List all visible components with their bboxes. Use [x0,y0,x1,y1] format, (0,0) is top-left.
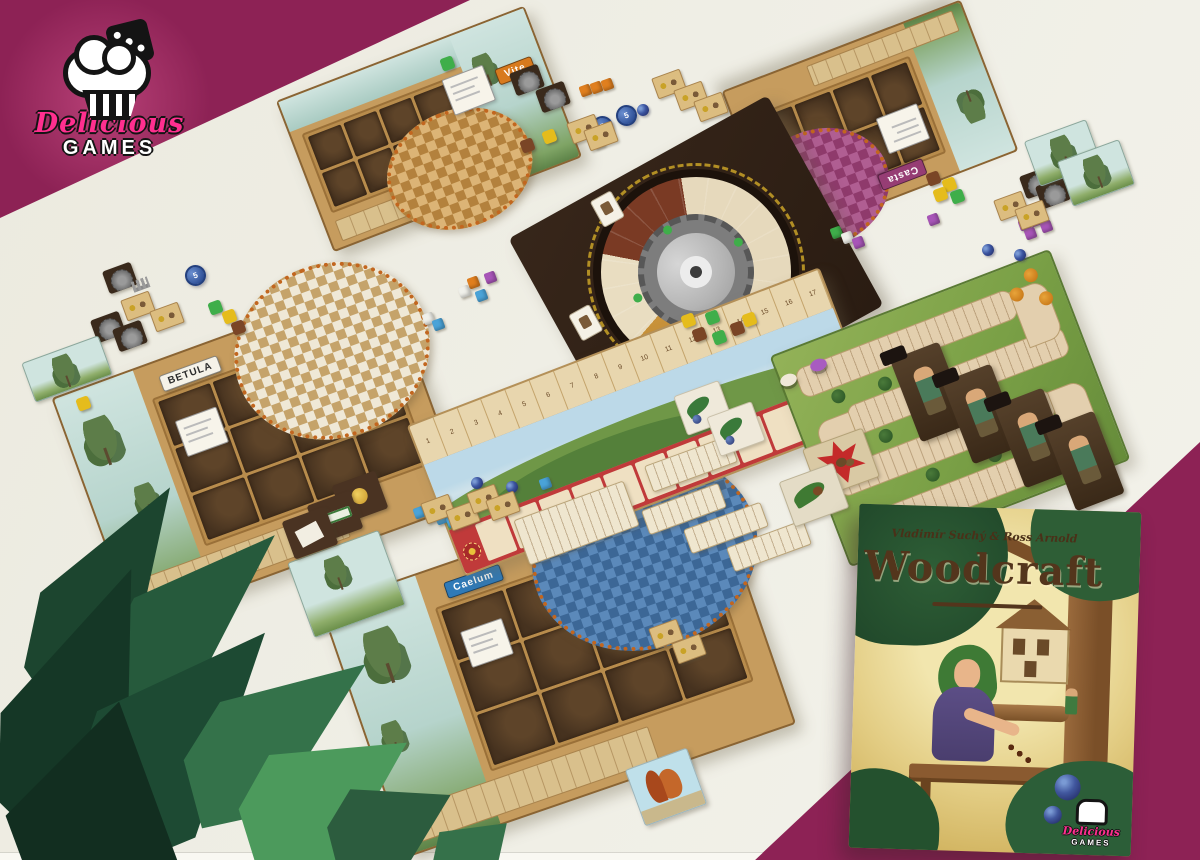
tree-art [355,622,416,691]
house-art [1000,626,1070,684]
meadow-tree [877,426,895,444]
woodcarver-face-art [954,659,981,690]
tree-art [318,554,354,595]
game-box-cover: Vladimír Suchý & Ross Arnold Woodcraft D… [849,504,1142,857]
tree-art [954,85,990,126]
table-front-edge [0,853,1200,860]
publisher-name-caps: GAMES [22,137,197,160]
meadow-tree [830,387,848,405]
sawyer-figure-art [1065,688,1078,714]
autumn-tree [1022,266,1040,284]
cupcake-dice-icon [1075,799,1108,826]
tree-art [1078,152,1114,193]
tree-art [75,412,129,473]
meadow-tree [923,466,941,484]
publisher-mini-logo: Delicious GAMES [1059,798,1124,848]
publisher-logo: Delicious GAMES [22,26,197,176]
promo-photo: Delicious GAMES Vite Casta BETULA [0,0,1200,860]
cupcake-dice-icon [55,26,165,104]
box-title: Woodcraft [857,542,1110,597]
tree-art [47,351,83,392]
